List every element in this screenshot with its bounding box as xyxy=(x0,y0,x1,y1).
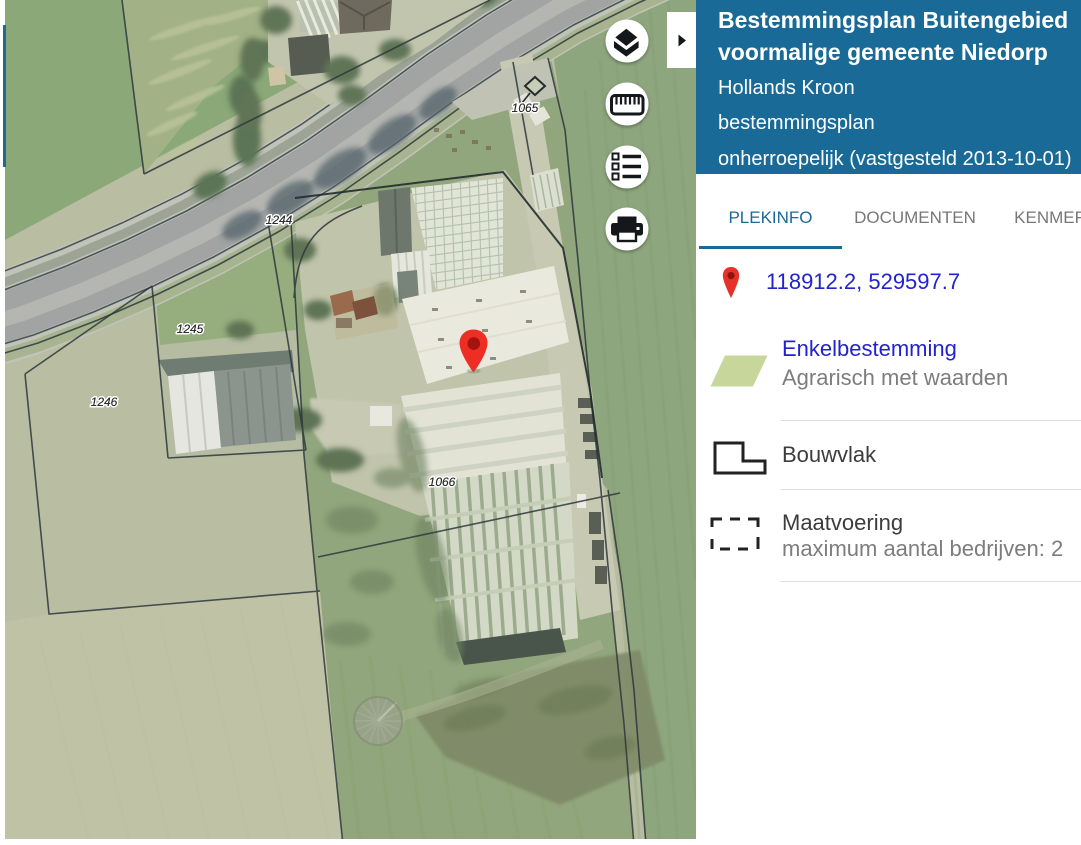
svg-text:1246: 1246 xyxy=(91,395,118,409)
svg-text:1065: 1065 xyxy=(512,101,539,115)
svg-text:1066: 1066 xyxy=(429,475,456,489)
svg-text:1244: 1244 xyxy=(266,213,293,227)
svg-text:1245: 1245 xyxy=(177,322,204,336)
